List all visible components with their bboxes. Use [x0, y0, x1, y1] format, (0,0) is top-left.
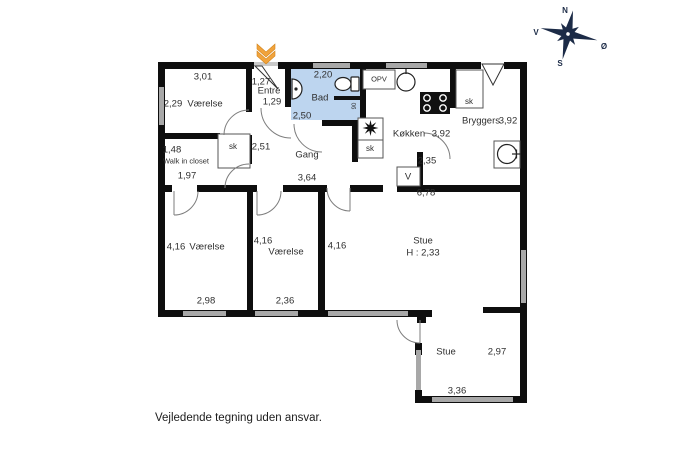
room-label: Gang: [295, 150, 318, 160]
window: [183, 311, 226, 316]
window: [432, 397, 513, 402]
room-label: Værelse: [268, 247, 303, 257]
room-label: Bad: [312, 93, 329, 103]
door-arc: [397, 320, 420, 343]
toilet-tank-icon: [351, 77, 359, 91]
room-dimension: 2,51: [252, 142, 271, 152]
compass-rose: N V Ø S: [533, 5, 607, 68]
room-dimension: 4,16: [254, 236, 273, 246]
closet-label: sk: [229, 143, 237, 151]
floor-plan-page: N V Ø S 3,01 2,29 Værelse 1,27 Entré 1,2…: [0, 0, 687, 457]
window: [255, 311, 298, 316]
room-label: Stue: [413, 236, 433, 246]
entrance-arrow-icon: [257, 44, 275, 64]
wall-segment: [520, 62, 527, 403]
door-arc: [261, 108, 291, 138]
doors: [174, 108, 450, 343]
wall-segment: [247, 192, 253, 310]
wall-segment: [197, 185, 257, 192]
room-dimension: 2,50: [293, 111, 312, 121]
room-label: Bryggers: [462, 116, 500, 126]
wall-segment: [352, 120, 358, 162]
compass-star: [535, 5, 602, 66]
wall-segment: [285, 69, 291, 107]
compass-west-label: V: [533, 28, 539, 37]
wall-segment: [158, 62, 254, 69]
room-dimension: 2,35: [418, 156, 437, 166]
room-label: Værelse: [189, 242, 224, 252]
room-dimension: 3,92: [432, 129, 451, 139]
room-label: Entré: [258, 86, 281, 96]
compass-east-label: Ø: [601, 42, 607, 51]
room-label: Stue: [436, 347, 456, 357]
floor-plan-drawing: N V Ø S: [0, 0, 687, 457]
room-dimension: 90: [352, 103, 358, 110]
door-arc: [327, 188, 350, 211]
wall-segment: [450, 69, 456, 108]
wall-segment: [350, 185, 383, 192]
door-arc: [294, 124, 322, 152]
room-dimension: 1,97: [178, 171, 197, 181]
disclaimer-text: Vejledende tegning uden ansvar.: [155, 412, 322, 424]
toilet-icon: [335, 78, 351, 91]
room-dimension: 6,78: [417, 188, 436, 198]
wall-segment: [158, 133, 220, 139]
room-dimension: 2,36: [276, 296, 295, 306]
window: [328, 311, 408, 316]
closet-label: sk: [366, 145, 374, 153]
door-arc: [257, 191, 281, 215]
closet-label: sk: [465, 98, 473, 106]
kitchen-basin-icon: [397, 73, 415, 91]
room-dimension: 1,29: [263, 97, 282, 107]
window: [386, 63, 427, 68]
room-dimension: 4,16: [328, 241, 347, 251]
washbasin-tap-icon: [294, 87, 297, 90]
wall-segment: [158, 185, 172, 192]
wall-segment: [417, 315, 426, 323]
wall-segment: [278, 62, 481, 69]
compass-south-label: S: [557, 59, 563, 68]
room-dimension: 2,98: [197, 296, 216, 306]
room-dimension: 3,64: [298, 173, 317, 183]
glass-wall: [416, 350, 421, 390]
kitchen-sink-icon: [363, 120, 379, 136]
room-dimension: 4,16: [167, 242, 186, 252]
room-dimension: 1,48: [163, 145, 182, 155]
room-dimension: 3,92: [499, 116, 518, 126]
dishwasher-label: OPV: [371, 75, 387, 83]
room-dimension: 3,36: [448, 386, 467, 396]
shower-partition: [334, 96, 362, 100]
window: [521, 250, 526, 303]
ceiling-height-label: H : 2,33: [406, 248, 439, 258]
window: [313, 63, 350, 68]
room-label: Køkken: [393, 129, 425, 139]
door-arc: [224, 110, 249, 135]
utility-door-leaf: [482, 64, 504, 85]
room-label: Walk in closet: [163, 157, 209, 165]
room-dimension: 3,01: [194, 72, 213, 82]
compass-north-label: N: [562, 6, 568, 15]
room-dimension: 2,20: [314, 70, 333, 80]
room-label: Værelse: [187, 99, 222, 109]
wall-segment: [318, 188, 325, 310]
room-dimension: 2,29: [164, 99, 183, 109]
room-dimension: 2,97: [488, 347, 507, 357]
door-arc: [174, 191, 198, 215]
washer-label: V: [405, 172, 411, 182]
closet-box: [218, 134, 250, 168]
wall-segment: [483, 307, 520, 313]
